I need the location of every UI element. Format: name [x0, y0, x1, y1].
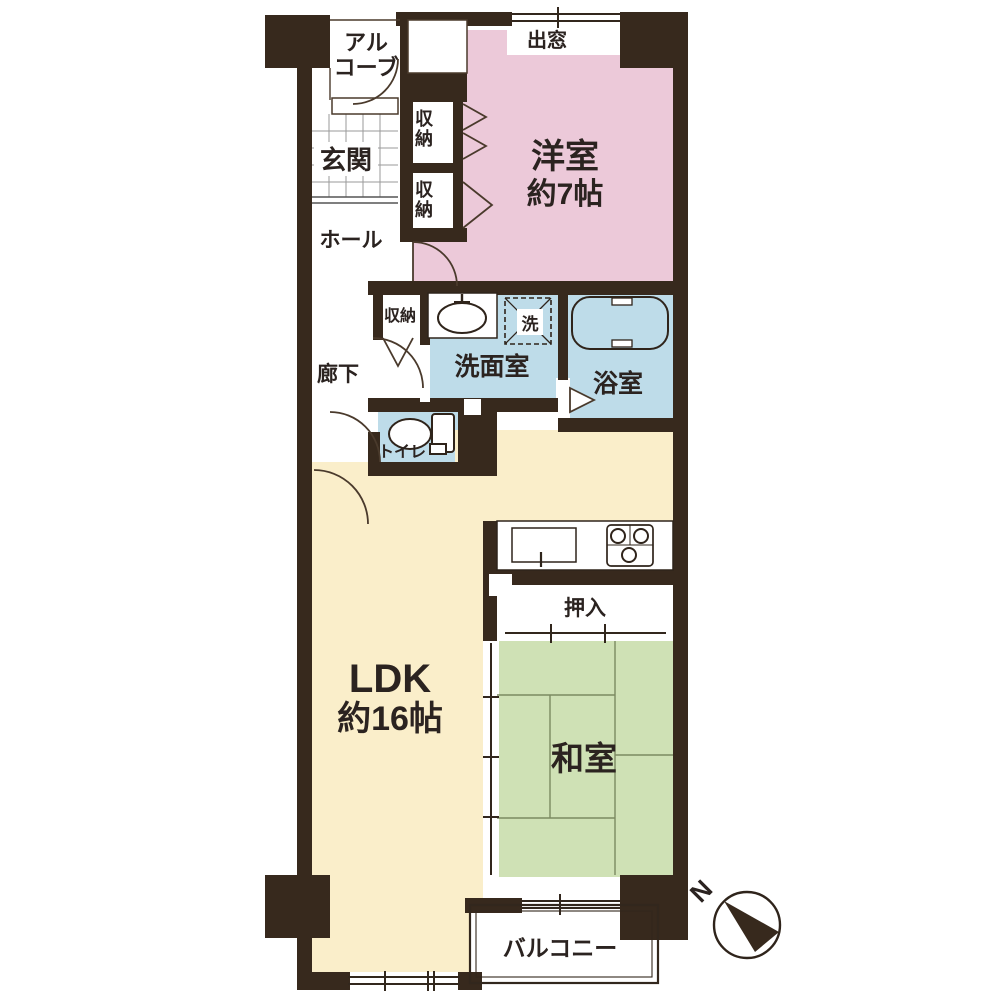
bay-window-icon [512, 7, 620, 28]
stove-icon [607, 525, 653, 566]
toilet-niche [464, 399, 481, 415]
wall-bath-bottom [558, 418, 673, 432]
label-balcony: バルコニー [503, 935, 618, 961]
label-laundry: 洗 [522, 314, 539, 334]
kitchen-counter [497, 521, 673, 570]
label-corridor-storage: 収納 [384, 306, 416, 325]
wall-bottom-left [297, 972, 350, 990]
bath-door-gap [556, 378, 570, 418]
label-ldk-size: 約16帖 [337, 700, 443, 738]
washbasin-icon [428, 293, 497, 338]
wall-bedroom-bottom [368, 281, 673, 295]
label-western-room-size: 約7帖 [527, 178, 604, 211]
wall-toilet-bottom [368, 462, 497, 476]
label-bathroom: 浴室 [593, 369, 643, 398]
label-corridor: 廊下 [317, 362, 359, 386]
entrance-door-slab [332, 98, 398, 114]
compass-icon: N [684, 874, 780, 958]
floor-plan: アル コーブ 出窓 洋室 約7帖 玄関 収納 収納 ホール 収納 廊下 洗面室 … [0, 0, 1000, 1000]
label-washroom: 洗面室 [454, 352, 529, 381]
label-oshiire: 押入 [564, 596, 606, 620]
wall-right [673, 40, 688, 940]
oshiire-niche [489, 574, 512, 596]
wall-closet-top [400, 73, 467, 102]
wall-corridor-storage-left [373, 283, 383, 340]
pillar-bottom-right [620, 875, 688, 940]
label-western-room: 洋室 [531, 137, 599, 176]
label-ldk: LDK [349, 657, 431, 701]
wall-oshiire-top [497, 570, 673, 585]
label-entrance: 玄関 [320, 145, 372, 175]
pillar-bottom-left [265, 875, 330, 938]
wall-bath-divider [558, 295, 568, 380]
floor-plan-canvas: アル コーブ 出窓 洋室 約7帖 玄関 収納 収納 ホール 収納 廊下 洗面室 … [0, 0, 1000, 1000]
kitchen-sink-icon [512, 528, 576, 562]
label-compass-north: N [684, 874, 718, 908]
label-closet-upper: 収納 [413, 109, 433, 149]
bottom-window-band [348, 972, 462, 990]
corridor-storage-door-icon [373, 338, 423, 388]
label-toilet: トイレ [378, 444, 426, 461]
label-alcove-2: コーブ [334, 55, 399, 80]
bathroom-floor [560, 285, 673, 432]
wall-closet-bottom [400, 228, 467, 242]
label-alcove: アル [344, 30, 388, 55]
label-japanese-room: 和室 [551, 740, 617, 777]
wall-left [297, 40, 312, 978]
label-hall: ホール [320, 229, 383, 252]
wall-closet-mid [408, 163, 463, 173]
label-closet-lower: 収納 [413, 180, 433, 220]
utility-box [408, 20, 467, 73]
label-bay-window: 出窓 [527, 28, 567, 52]
